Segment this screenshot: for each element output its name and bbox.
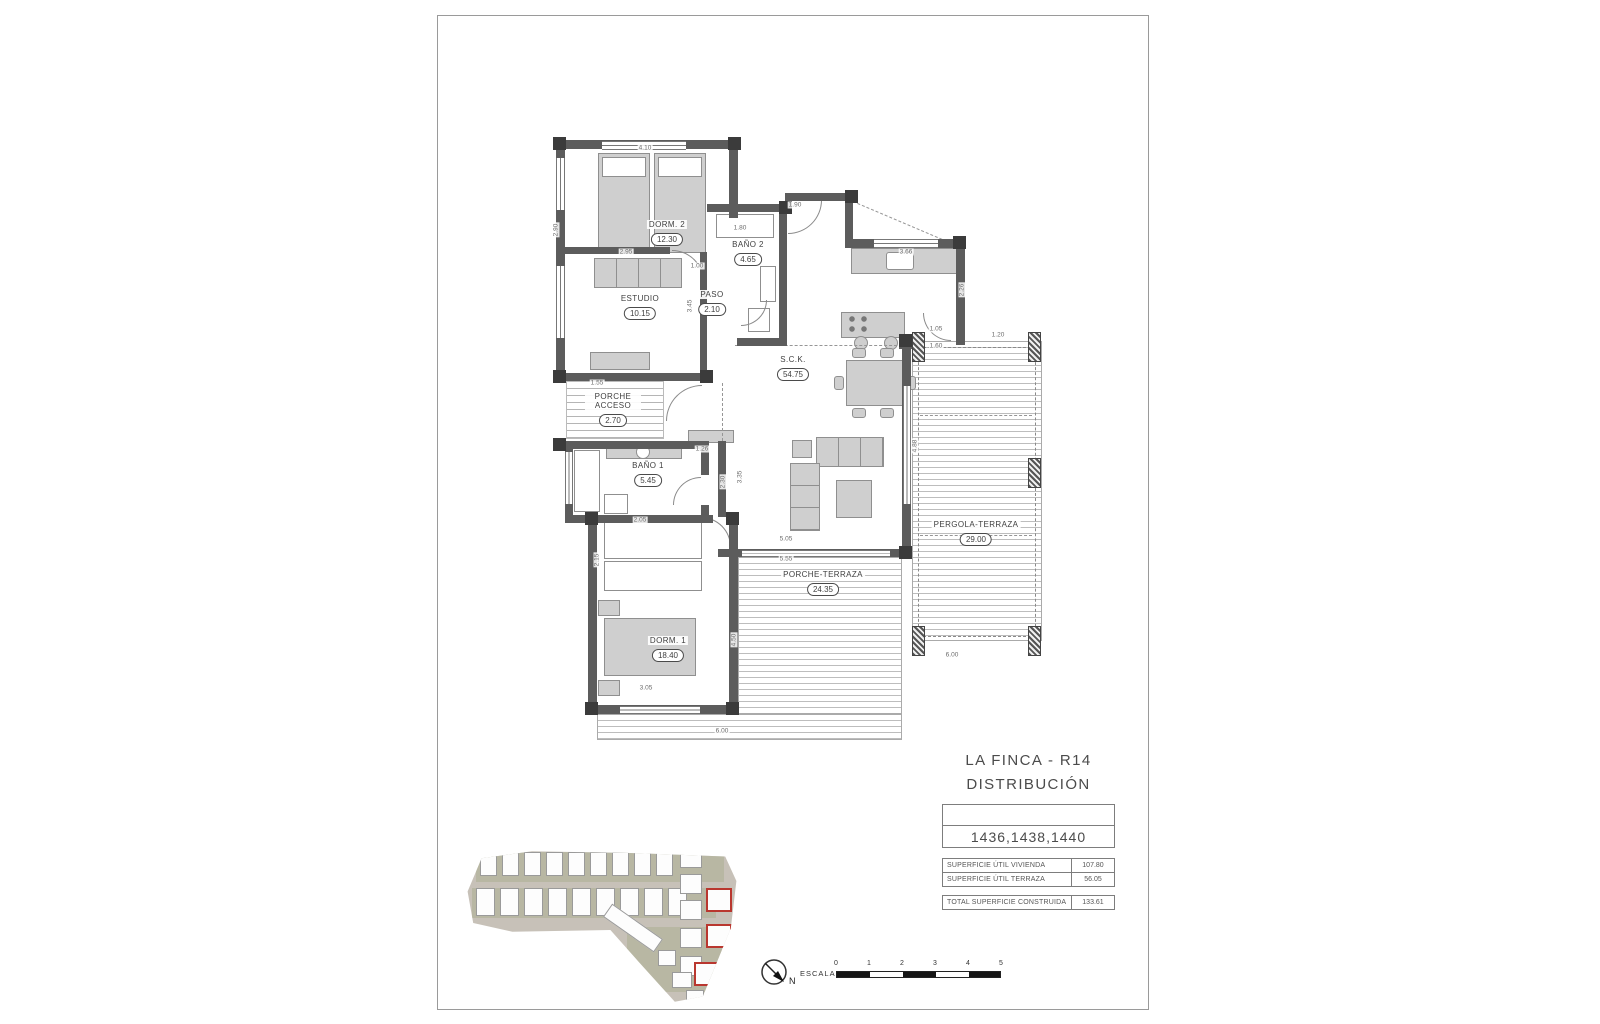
site-building xyxy=(572,888,591,916)
furniture-wardrobe xyxy=(604,561,702,591)
site-building-highlighted xyxy=(706,924,732,948)
wall-segment xyxy=(588,515,597,714)
furniture-washbasin xyxy=(760,266,776,302)
site-building xyxy=(680,874,702,894)
dimension-label: 1.00 xyxy=(690,263,705,270)
furniture-sofa xyxy=(594,258,682,288)
wall-pier xyxy=(953,236,966,249)
wall-segment xyxy=(729,515,738,714)
sheet-subtitle: DISTRIBUCIÓN xyxy=(942,776,1115,793)
room-label-bano1: BAÑO 1 5.45 xyxy=(630,461,666,488)
dimension-label: 4.50 xyxy=(731,633,738,648)
wall-pier xyxy=(585,512,598,525)
opening-dashed-line xyxy=(722,383,723,441)
wall-segment xyxy=(563,247,670,254)
pergola-column xyxy=(1028,626,1041,656)
wall-pier xyxy=(728,137,741,150)
site-building xyxy=(634,852,651,876)
room-label-dorm2: DORM. 2 12.30 xyxy=(647,220,687,247)
room-label-bano2: BAÑO 2 4.65 xyxy=(730,240,766,267)
site-building xyxy=(680,900,702,920)
door-arc xyxy=(666,385,702,421)
dimension-label: 1.20 xyxy=(991,332,1006,339)
window xyxy=(742,550,890,557)
plot-numbers: 1436,1438,1440 xyxy=(943,826,1114,848)
site-building xyxy=(500,888,519,916)
scale-tick-label: 1 xyxy=(867,960,871,967)
dimension-label: 4.88 xyxy=(912,439,919,454)
site-building xyxy=(476,888,495,916)
furniture-nightstand xyxy=(598,600,620,616)
north-arrow-icon xyxy=(758,956,792,990)
room-label-porche-terraza: PORCHE-TERRAZA 24.35 xyxy=(781,570,865,597)
furniture-nightstand xyxy=(598,680,620,696)
scale-bar xyxy=(836,971,1001,978)
wall-segment xyxy=(565,441,705,449)
furniture-chair xyxy=(834,376,844,390)
site-plan-base xyxy=(462,832,742,1007)
wall-segment xyxy=(556,373,708,381)
pergola-dashed-outline xyxy=(918,347,1036,637)
dimension-label: 1.80 xyxy=(733,225,748,232)
wall-pier xyxy=(899,546,912,559)
furniture-cooktop xyxy=(846,314,872,334)
porche-terraza-deck-south xyxy=(597,714,902,740)
dimension-label: 3.35 xyxy=(737,470,744,485)
pergola-column xyxy=(912,626,925,656)
scale-label: ESCALA xyxy=(800,969,836,978)
plot-number-box: 1436,1438,1440 xyxy=(942,804,1115,848)
site-building xyxy=(680,928,702,948)
dimension-label: 1.60 xyxy=(929,343,944,350)
dimension-label: 4.10 xyxy=(638,145,653,152)
wall-pier xyxy=(845,190,858,203)
furniture-side-table xyxy=(792,440,812,458)
furniture-coffee-table xyxy=(836,480,872,518)
dimension-label: 1.05 xyxy=(929,326,944,333)
dimension-label: 2.30 xyxy=(720,475,727,490)
dimension-label: 3.45 xyxy=(687,299,694,314)
dimension-label: 2.05 xyxy=(633,517,648,524)
door-arc xyxy=(673,477,701,505)
wall-segment xyxy=(785,193,853,201)
wall-segment xyxy=(707,204,787,212)
site-building xyxy=(524,852,541,876)
room-label-dorm1: DORM. 1 18.40 xyxy=(648,636,688,663)
wall-pier xyxy=(553,438,566,451)
window xyxy=(620,706,700,714)
dimension-label: 5.05 xyxy=(779,536,794,543)
site-building xyxy=(612,852,629,876)
pergola-beam-line xyxy=(920,415,1032,416)
furniture-toilet xyxy=(604,494,628,514)
site-building xyxy=(480,852,497,876)
dimension-label: 2.90 xyxy=(553,223,560,238)
scale-tick-label: 5 xyxy=(999,960,1003,967)
wall-pier xyxy=(553,370,566,383)
dimension-label: 1.55 xyxy=(590,380,605,387)
dimension-label: 2.26 xyxy=(959,283,966,298)
furniture-pillow xyxy=(602,157,646,177)
floor-plan: DORM. 2 12.30 BAÑO 2 4.65 ESTUDIO 10.15 … xyxy=(0,0,1600,1024)
site-building xyxy=(672,972,692,988)
wall-pier xyxy=(899,334,912,347)
dimension-label: 6.00 xyxy=(945,652,960,659)
dimension-label: 3.05 xyxy=(639,685,654,692)
dimension-label: 1.26 xyxy=(695,446,710,453)
dimension-label: 1.90 xyxy=(788,202,803,209)
scale-tick-label: 2 xyxy=(900,960,904,967)
furniture-cabinet xyxy=(590,352,650,370)
room-label-porche-acceso: PORCHE ACCESO 2.70 xyxy=(585,392,641,428)
scale-tick-label: 3 xyxy=(933,960,937,967)
wall-pier xyxy=(700,370,713,383)
wall-pier xyxy=(726,702,739,715)
pergola-column xyxy=(912,332,925,362)
area-table-row: SUPERFICIE ÚTIL TERRAZA 56.05 xyxy=(942,872,1115,887)
plot-number-box-empty-cell xyxy=(943,805,1114,826)
site-building xyxy=(686,990,704,1004)
project-title: LA FINCA - R14 xyxy=(942,752,1115,769)
furniture-sofa xyxy=(790,463,820,531)
window xyxy=(556,266,565,338)
room-label-paso: PASO 2.10 xyxy=(698,290,726,317)
window xyxy=(874,239,938,248)
dimension-label: 2.95 xyxy=(619,249,634,256)
wall-pier xyxy=(726,512,739,525)
north-label: N xyxy=(789,976,796,986)
site-building xyxy=(548,888,567,916)
site-building-highlighted xyxy=(694,962,720,986)
room-label-sck: S.C.K. 54.75 xyxy=(777,355,809,382)
window xyxy=(556,158,565,210)
site-building xyxy=(644,888,663,916)
site-building xyxy=(546,852,563,876)
furniture-chair xyxy=(852,348,866,358)
furniture-chair xyxy=(852,408,866,418)
site-building xyxy=(680,848,702,868)
dimension-label: 2.15 xyxy=(594,553,601,568)
dimension-label: 6.00 xyxy=(715,728,730,735)
pergola-column xyxy=(1028,332,1041,362)
site-building xyxy=(656,852,673,876)
wall-segment xyxy=(737,338,787,346)
area-table-total-row: TOTAL SUPERFICIE CONSTRUIDA 133.61 xyxy=(942,895,1115,910)
wall-segment xyxy=(779,204,787,346)
dimension-label: 3.66 xyxy=(899,249,914,256)
scale-tick-label: 0 xyxy=(834,960,838,967)
room-label-pergola-terraza: PERGOLA-TERRAZA 29.00 xyxy=(932,520,1021,547)
furniture-chair xyxy=(880,408,894,418)
wall-pier xyxy=(553,137,566,150)
site-building xyxy=(524,888,543,916)
furniture-chair xyxy=(880,348,894,358)
room-label-estudio: ESTUDIO 10.15 xyxy=(619,294,661,321)
furniture-pillow xyxy=(658,157,702,177)
wall-pier xyxy=(585,702,598,715)
window xyxy=(565,452,573,504)
pergola-column xyxy=(1028,458,1041,488)
site-building xyxy=(502,852,519,876)
furniture-wardrobe xyxy=(604,521,702,559)
site-building xyxy=(658,950,676,966)
area-table-row: SUPERFICIE ÚTIL VIVIENDA 107.80 xyxy=(942,858,1115,873)
dimension-label: 5.55 xyxy=(779,556,794,563)
furniture-shower xyxy=(574,450,600,512)
site-building-highlighted xyxy=(706,888,732,912)
site-building xyxy=(568,852,585,876)
furniture-sofa xyxy=(816,437,884,467)
furniture-dining-table xyxy=(846,360,904,406)
scale-tick-label: 4 xyxy=(966,960,970,967)
window xyxy=(903,386,911,504)
site-plan xyxy=(462,832,742,1007)
site-building xyxy=(590,852,607,876)
wall-segment xyxy=(701,505,709,523)
